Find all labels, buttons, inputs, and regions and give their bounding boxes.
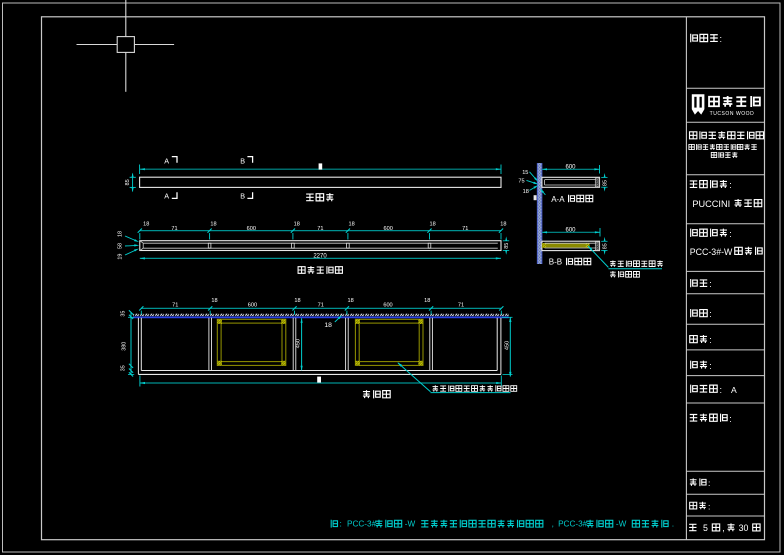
svg-text:600: 600 xyxy=(383,302,392,308)
svg-text:PUCCINI: PUCCINI xyxy=(692,199,730,209)
svg-text:58: 58 xyxy=(117,243,123,249)
svg-text:18: 18 xyxy=(324,322,332,329)
svg-text:71: 71 xyxy=(462,226,468,232)
svg-text:5: 5 xyxy=(703,523,708,533)
svg-text:19: 19 xyxy=(117,254,123,260)
svg-text:18: 18 xyxy=(143,222,149,228)
svg-text:18: 18 xyxy=(523,189,529,195)
svg-text::: : xyxy=(729,180,732,190)
svg-text:600: 600 xyxy=(565,165,576,171)
svg-text::: : xyxy=(720,34,723,44)
svg-text::: : xyxy=(729,229,732,239)
svg-text:85: 85 xyxy=(603,180,609,186)
svg-text:B: B xyxy=(240,156,245,165)
svg-text:71: 71 xyxy=(318,302,324,308)
svg-text:71: 71 xyxy=(172,302,178,308)
svg-text::: : xyxy=(708,478,710,488)
svg-text:PCC-3#: PCC-3# xyxy=(347,519,377,528)
svg-text:71: 71 xyxy=(171,226,177,232)
svg-text:450: 450 xyxy=(504,341,510,350)
svg-text:B-B: B-B xyxy=(549,258,562,267)
svg-text::: : xyxy=(340,518,342,528)
svg-text:18: 18 xyxy=(500,222,506,228)
svg-text:35: 35 xyxy=(121,365,127,371)
svg-text:450: 450 xyxy=(296,339,302,348)
svg-text::: : xyxy=(720,385,723,395)
svg-text::: : xyxy=(709,279,712,289)
svg-text:18: 18 xyxy=(348,222,354,228)
svg-text:600: 600 xyxy=(248,302,257,308)
svg-text:18: 18 xyxy=(424,298,430,304)
svg-text:15: 15 xyxy=(522,170,528,176)
svg-text::: : xyxy=(709,309,712,319)
svg-text:35: 35 xyxy=(120,311,126,317)
svg-text:TUCSON WOOD: TUCSON WOOD xyxy=(710,111,755,117)
svg-text:18: 18 xyxy=(429,222,435,228)
svg-text:B: B xyxy=(240,192,245,201)
svg-text::: : xyxy=(709,335,712,345)
svg-text:A: A xyxy=(731,385,737,395)
svg-text:85: 85 xyxy=(504,243,510,249)
svg-text:600: 600 xyxy=(247,226,256,232)
svg-text:-W: -W xyxy=(616,519,627,528)
svg-text:18: 18 xyxy=(294,298,300,304)
svg-text:18: 18 xyxy=(211,298,217,304)
svg-text:18: 18 xyxy=(210,222,216,228)
svg-text:600: 600 xyxy=(384,226,393,232)
svg-text::: : xyxy=(708,502,710,512)
svg-text:75: 75 xyxy=(518,179,524,185)
svg-text:.: . xyxy=(672,518,674,528)
svg-text:18: 18 xyxy=(117,231,123,237)
svg-text:A: A xyxy=(164,192,169,201)
svg-text:2270: 2270 xyxy=(313,254,327,260)
svg-text:-W: -W xyxy=(405,519,416,528)
svg-text:85: 85 xyxy=(603,243,609,249)
svg-text:380: 380 xyxy=(121,342,127,351)
svg-text:600: 600 xyxy=(565,228,576,234)
svg-text:A: A xyxy=(164,156,169,165)
svg-text:18: 18 xyxy=(347,298,353,304)
svg-text::: : xyxy=(709,361,712,371)
svg-text:71: 71 xyxy=(458,302,464,308)
svg-text:71: 71 xyxy=(317,226,323,232)
svg-text:,: , xyxy=(722,523,724,533)
svg-text:18: 18 xyxy=(294,222,300,228)
svg-text:,: , xyxy=(552,519,554,528)
svg-text:85: 85 xyxy=(125,179,131,185)
svg-text:PCC-3#-W: PCC-3#-W xyxy=(690,247,733,257)
svg-text:A-A: A-A xyxy=(551,195,565,204)
svg-text:PCC-3#: PCC-3# xyxy=(558,519,588,528)
svg-text:30: 30 xyxy=(739,523,749,533)
svg-text::: : xyxy=(729,414,732,424)
